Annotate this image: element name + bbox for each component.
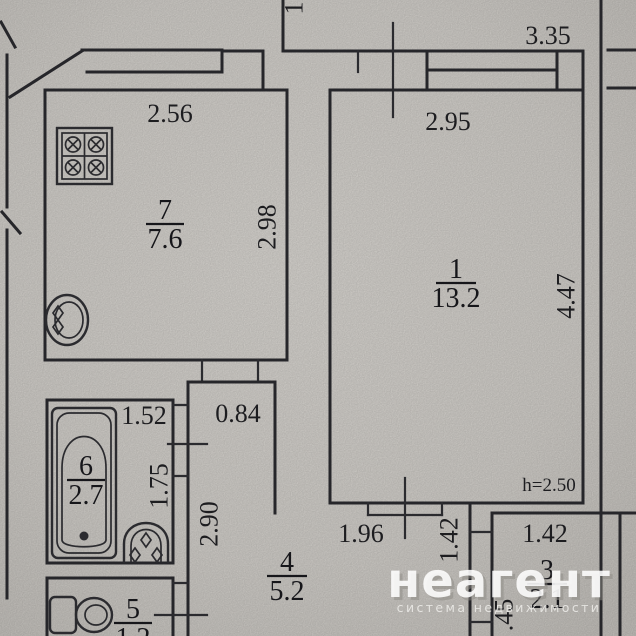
dim-hall-depth: 2.90 xyxy=(195,501,224,547)
dim-living-width: 2.95 xyxy=(425,107,471,136)
dim-kitchen-depth: 2.98 xyxy=(253,204,282,250)
dim-kitchen-width: 2.56 xyxy=(147,99,193,128)
bath-area: 2.7 xyxy=(69,480,104,511)
dim-ceiling-height: h=2.50 xyxy=(522,475,575,496)
kitchen-area: 7.6 xyxy=(148,224,183,255)
hall-number: 4 xyxy=(280,547,294,578)
floor-plan-scan: 2.56 2.95 3.35 0.84 1.52 1.96 1.42 h=2.5… xyxy=(0,0,636,636)
dim-bath-depth: 1.75 xyxy=(145,463,174,509)
dim-living-depth: 4.47 xyxy=(552,273,581,319)
floor-plan-svg: 2.56 2.95 3.35 0.84 1.52 1.96 1.42 h=2.5… xyxy=(0,0,636,636)
living-area: 13.2 xyxy=(432,283,481,314)
dim-hall-width: 1.96 xyxy=(338,519,384,548)
wc-area: 1.2 xyxy=(116,623,151,636)
dim-bath-width: 1.52 xyxy=(121,401,167,430)
living-number: 1 xyxy=(449,254,463,285)
dim-storage-width: 1.42 xyxy=(522,519,568,548)
watermark: неагент неагент система недвижимости xyxy=(387,553,614,615)
hall-area: 5.2 xyxy=(270,576,305,607)
dim-top-cut: 1 xyxy=(280,2,309,15)
wc-number: 5 xyxy=(126,594,140,625)
watermark-tagline: система недвижимости xyxy=(397,600,602,615)
bath-number: 6 xyxy=(79,451,93,482)
kitchen-number: 7 xyxy=(158,195,172,226)
dim-outer-width: 3.35 xyxy=(525,21,571,50)
dim-vestibule-width: 0.84 xyxy=(215,399,261,428)
